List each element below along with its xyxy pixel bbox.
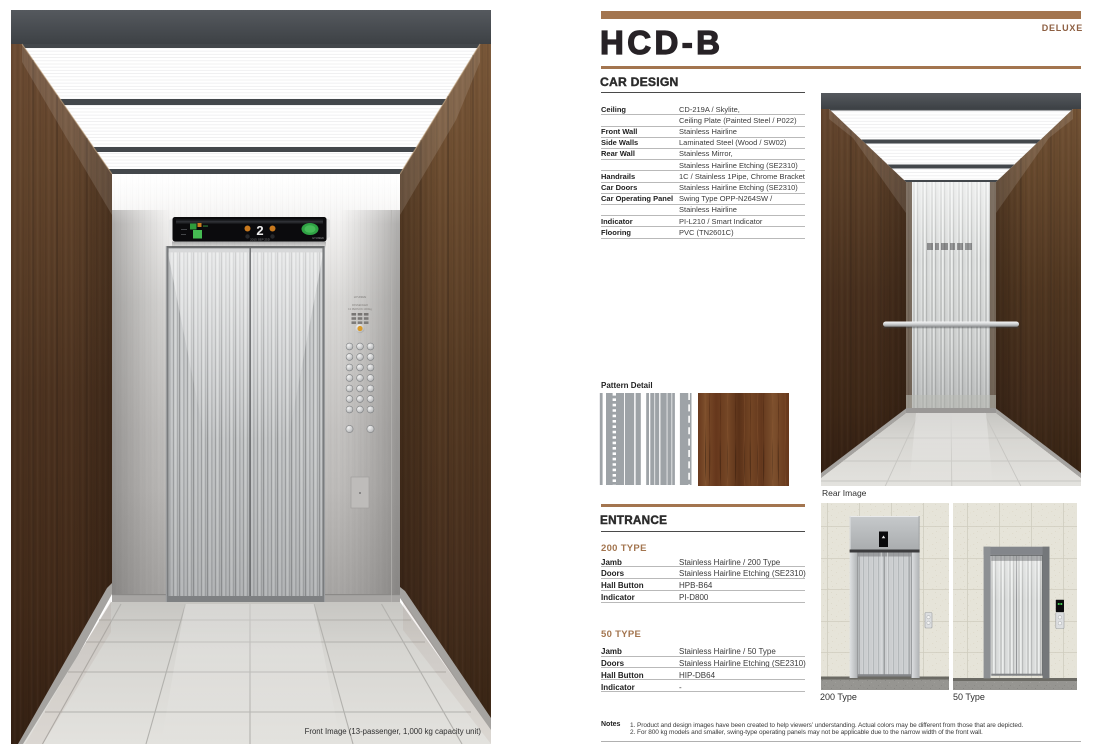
svg-text:Front Image (13-passenger, 1,0: Front Image (13-passenger, 1,000 kg capa… — [305, 727, 482, 736]
svg-text:2: 2 — [256, 223, 263, 238]
svg-text:PASSENGER: PASSENGER — [352, 303, 368, 307]
svg-text:2015 SEP 25D: 2015 SEP 25D — [250, 238, 271, 242]
svg-text:HYUNDAI: HYUNDAI — [312, 236, 324, 240]
svg-text:13 PERSON 1000kg: 13 PERSON 1000kg — [348, 307, 372, 311]
svg-text:HYUNDAI: HYUNDAI — [354, 295, 367, 299]
